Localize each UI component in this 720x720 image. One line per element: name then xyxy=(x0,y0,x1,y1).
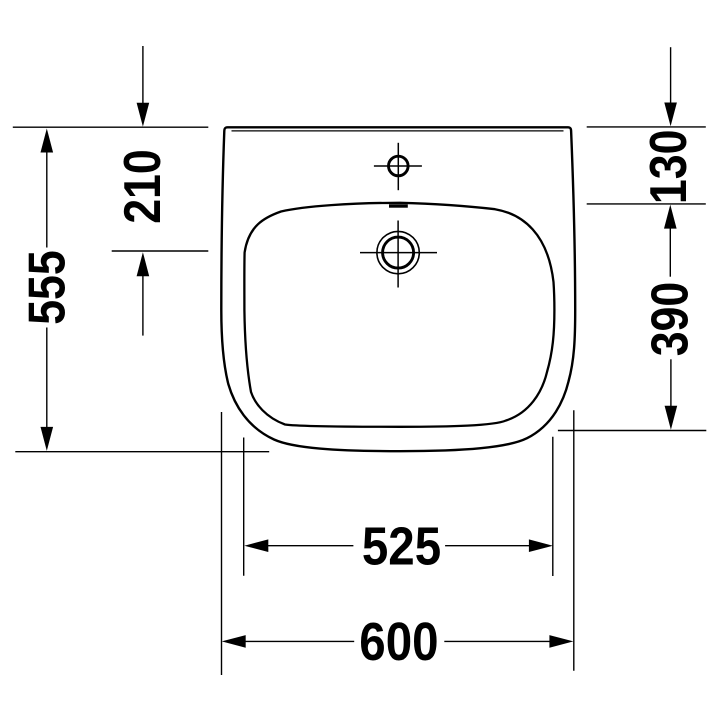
svg-text:390: 390 xyxy=(641,282,699,357)
svg-text:600: 600 xyxy=(359,611,438,672)
svg-text:130: 130 xyxy=(640,129,698,204)
svg-text:555: 555 xyxy=(18,250,76,325)
svg-text:210: 210 xyxy=(114,149,172,224)
svg-text:525: 525 xyxy=(362,516,441,577)
